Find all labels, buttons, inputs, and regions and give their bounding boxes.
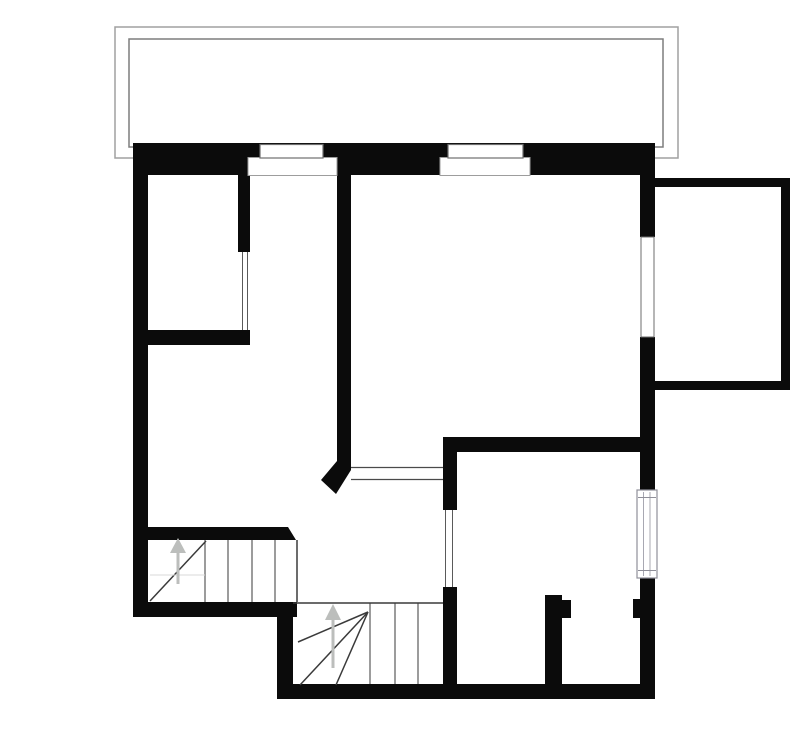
bottom-left-wall: [133, 602, 297, 617]
top-wall: [133, 143, 655, 175]
terrace-inner-rect: [129, 39, 663, 147]
center-wall-tip: [321, 461, 351, 494]
right-wall-lower: [640, 578, 655, 699]
right-wall-stub: [633, 599, 642, 618]
balcony-bottom-wall: [653, 381, 790, 390]
room2-stub-notch: [562, 600, 571, 618]
left-wall: [133, 143, 148, 617]
window1: [260, 145, 323, 159]
bottom-wall: [277, 684, 655, 699]
right-wall-mid: [640, 337, 655, 490]
balcony-top-wall: [653, 178, 790, 187]
balcony-right-wall: [781, 178, 790, 390]
center-wall: [337, 143, 351, 467]
window1-recess: [248, 158, 337, 176]
stair-side-wall: [148, 527, 278, 540]
room2-left-wall-upper: [443, 437, 457, 510]
stair1-arrow-head: [170, 538, 186, 553]
radiator-window: [637, 490, 657, 578]
window2: [448, 145, 523, 159]
stair-side-wall-end: [278, 527, 296, 540]
stair2-arrow-head: [325, 604, 341, 620]
floor-plan-image: [0, 0, 800, 736]
window2-recess: [440, 158, 530, 176]
terrace-outer-rect: [115, 27, 678, 158]
room2-top-wall: [443, 437, 655, 452]
bedroom-bottom-wall: [148, 330, 250, 345]
room2-stub-wall: [545, 595, 562, 696]
right-wall-upper: [640, 143, 655, 237]
floor-plan-svg: [0, 0, 800, 736]
room2-left-wall-lower: [443, 587, 457, 699]
window3: [641, 237, 654, 337]
